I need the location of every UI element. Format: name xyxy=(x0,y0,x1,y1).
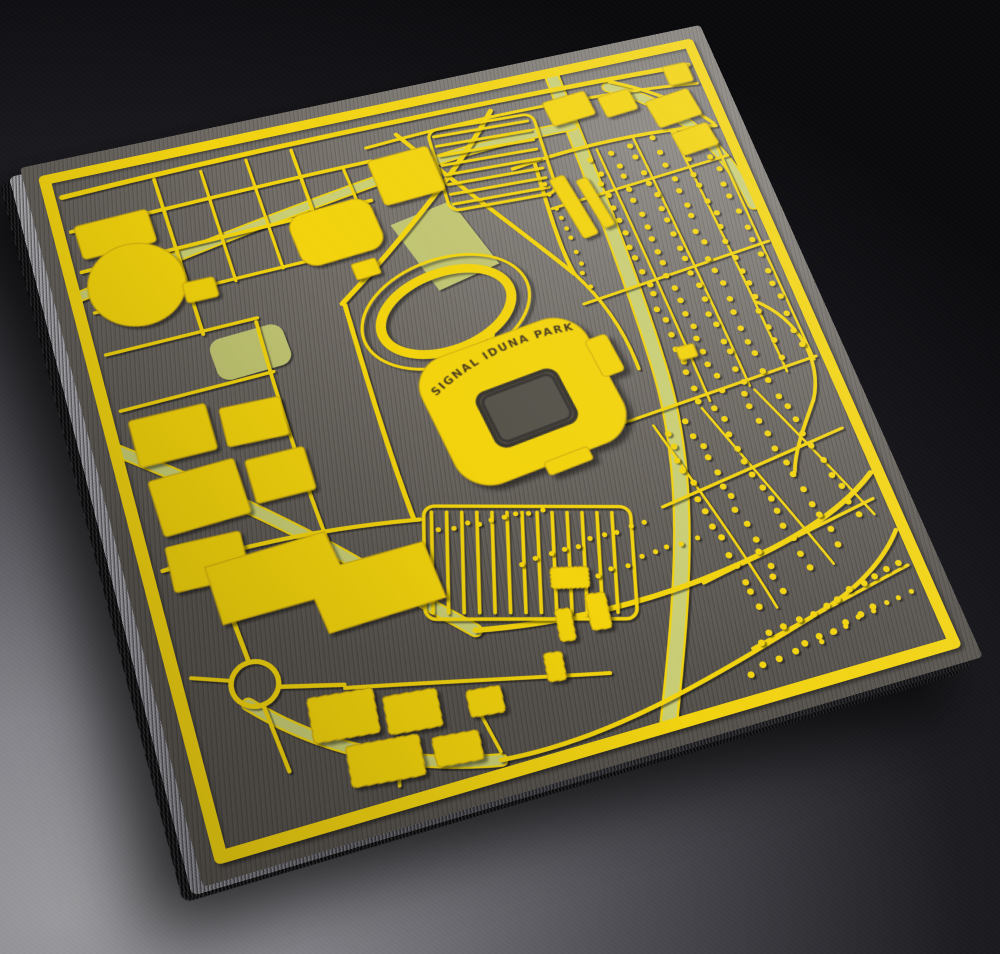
allotment-dot xyxy=(608,566,615,572)
allotment-dot xyxy=(710,405,719,412)
allotment-dot xyxy=(882,565,891,573)
building xyxy=(382,688,443,735)
allotment-dot xyxy=(719,483,728,491)
parking-stripe xyxy=(507,512,511,612)
allotment-dot xyxy=(641,519,648,525)
allotment-dot xyxy=(758,484,767,492)
allotment-dot xyxy=(692,228,700,235)
allotment-dot xyxy=(622,230,630,237)
allotment-dot xyxy=(451,525,458,531)
allotment-dot xyxy=(708,523,717,531)
allotment-dot xyxy=(694,535,701,541)
allotment-dot xyxy=(689,433,698,440)
allotment-dot xyxy=(716,166,724,172)
allotment-dot xyxy=(681,255,689,262)
allotment-dot xyxy=(687,212,695,219)
allotment-dot xyxy=(799,485,808,493)
allotment-dot xyxy=(568,235,574,240)
allotment-dot xyxy=(676,245,684,252)
allotment-dot xyxy=(575,544,582,550)
allotment-dot xyxy=(725,193,733,199)
parking-stripe xyxy=(537,512,541,612)
allotment-dot xyxy=(626,143,634,149)
allotment-dot xyxy=(689,171,697,177)
allotment-dot xyxy=(620,173,628,179)
allotment-dot xyxy=(792,416,801,423)
allotment-dot xyxy=(764,376,772,383)
allotment-dot xyxy=(578,261,584,266)
photo-scene: SIGNAL IDUNA PARK xyxy=(0,0,1000,954)
allotment-dot xyxy=(751,350,759,357)
allotment-dot xyxy=(616,163,624,169)
allotment-dot xyxy=(767,562,776,570)
allotment-dot xyxy=(731,506,740,514)
allotment-dot xyxy=(601,532,608,538)
allotment-dot xyxy=(573,249,579,254)
allotment-dot xyxy=(808,500,817,508)
exhibition-hall xyxy=(219,396,290,447)
allotment-dot xyxy=(758,661,767,669)
allotment-dot xyxy=(719,181,727,187)
allotment-dot xyxy=(662,316,670,323)
allotment-dot xyxy=(699,442,708,449)
allotment-dot xyxy=(755,603,764,611)
allotment-dot xyxy=(587,535,594,541)
allotment-dot xyxy=(700,239,708,246)
allotment-dot xyxy=(704,311,712,318)
road-segment xyxy=(365,73,697,154)
allotment-dot xyxy=(631,154,639,160)
allotment-dot xyxy=(737,325,745,332)
road-segment xyxy=(191,668,232,691)
building xyxy=(550,566,590,588)
allotment-dot xyxy=(628,523,635,529)
allotment-dot xyxy=(731,366,739,373)
allotment-dot xyxy=(701,507,710,515)
allotment-dot xyxy=(649,290,657,297)
allotment-dot xyxy=(855,510,864,518)
allotment-dot xyxy=(686,270,694,277)
allotment-dot xyxy=(512,511,519,517)
allotment-dot xyxy=(654,248,662,255)
allotment-dot xyxy=(631,254,639,261)
allotment-dot xyxy=(895,595,902,601)
allotment-dot xyxy=(720,415,729,422)
allotment-dot xyxy=(464,520,471,526)
allotment-dot xyxy=(815,632,824,640)
allotment-dot xyxy=(727,492,736,500)
allotment-dot xyxy=(740,458,749,465)
allotment-dot xyxy=(764,267,772,274)
allotment-dot xyxy=(625,563,632,569)
allotment-dot xyxy=(692,335,700,342)
allotment-dot xyxy=(764,629,773,637)
building xyxy=(675,343,698,360)
allotment-dot xyxy=(639,553,646,559)
allotment-dot xyxy=(757,251,765,258)
allotment-dot xyxy=(894,559,903,567)
parking-stripe xyxy=(612,513,618,613)
allotment-dot xyxy=(656,149,664,155)
allotment-dot xyxy=(755,417,764,424)
allotment-dot xyxy=(735,208,743,215)
building xyxy=(307,688,381,744)
allotment-dot xyxy=(563,226,569,231)
allotment-dot xyxy=(763,430,772,437)
allotment-dot xyxy=(741,578,750,586)
allotment-dot xyxy=(435,527,442,533)
allotment-dot xyxy=(648,135,656,141)
allotment-dot xyxy=(525,510,532,516)
building xyxy=(345,734,426,788)
parking-stripe xyxy=(448,168,543,185)
exhibition-hall xyxy=(245,446,317,504)
allotment-dot xyxy=(663,217,671,224)
allotment-dot xyxy=(663,544,670,550)
building xyxy=(585,592,612,631)
allotment-dot xyxy=(683,202,691,208)
allotment-dot xyxy=(644,224,652,231)
building xyxy=(542,91,596,127)
allotment-dot xyxy=(796,550,805,558)
allotment-dot xyxy=(719,280,727,287)
allotment-dot xyxy=(675,188,683,194)
allotment-dot xyxy=(703,361,711,368)
road-segment xyxy=(738,565,923,649)
parking-stripe xyxy=(447,512,449,613)
allotment-dot xyxy=(783,402,792,409)
allotment-dot xyxy=(724,551,733,559)
parking-stripe xyxy=(567,512,572,612)
allotment-dot xyxy=(693,495,702,503)
green-lot xyxy=(387,195,504,296)
allotment-dot xyxy=(870,572,879,580)
allotment-dot xyxy=(747,671,756,679)
allotment-dot xyxy=(629,197,637,203)
allotment-dot xyxy=(744,224,752,231)
allotment-dot xyxy=(775,655,784,663)
allotment-dot xyxy=(767,495,776,503)
allotment-dot xyxy=(834,541,843,549)
allotment-dot xyxy=(648,236,656,243)
allotment-dot xyxy=(712,321,720,328)
parking-stripe xyxy=(552,512,557,612)
allotment-dot xyxy=(681,310,689,317)
allotment-dot xyxy=(791,647,800,655)
road-segment xyxy=(201,171,236,281)
allotment-dot xyxy=(652,549,659,555)
allotment-dot xyxy=(782,459,791,466)
parking-stripe xyxy=(492,512,495,612)
allotment-dot xyxy=(561,546,568,552)
parking-stripe xyxy=(477,512,480,612)
allotment-dot xyxy=(699,348,707,355)
allotment-dot xyxy=(744,338,752,345)
allotment-dot xyxy=(713,469,722,477)
allotment-dot xyxy=(579,270,585,275)
allotment-dot xyxy=(711,267,719,274)
allotment-dot xyxy=(638,268,646,275)
allotment-dot xyxy=(704,454,713,461)
exhibition-hall xyxy=(128,403,218,468)
allotment-dot xyxy=(689,323,697,330)
allotment-dot xyxy=(743,520,752,528)
allotment-dot xyxy=(658,205,666,212)
allotment-dot xyxy=(748,236,756,243)
allotment-dot xyxy=(661,162,669,168)
allotment-dot xyxy=(800,639,809,647)
allotment-dot xyxy=(773,507,782,515)
building xyxy=(351,258,381,280)
allotment-dot xyxy=(768,573,777,581)
allotment-dot xyxy=(671,285,679,292)
allotment-dot xyxy=(681,418,690,425)
allotment-dot xyxy=(638,211,646,218)
allotment-dot xyxy=(720,338,728,345)
allotment-dot xyxy=(653,306,661,313)
allotment-dot xyxy=(740,390,748,397)
building xyxy=(466,685,506,718)
parking-stripe xyxy=(451,178,546,195)
allotment-dot xyxy=(640,170,648,176)
allotment-dot xyxy=(659,259,667,266)
allotment-dot xyxy=(676,297,684,304)
parking-stripe xyxy=(462,512,464,612)
allotment-dot xyxy=(768,280,776,287)
allotment-dot xyxy=(669,231,677,238)
allotment-dot xyxy=(779,587,788,595)
allotment-dot xyxy=(607,150,615,156)
allotment-dot xyxy=(771,445,780,452)
allotment-dot xyxy=(908,588,915,594)
allotment-dot xyxy=(682,369,690,376)
green-lot xyxy=(207,321,295,382)
allotment-dot xyxy=(826,525,835,533)
allotment-dot xyxy=(752,536,761,544)
allotment-dot xyxy=(558,215,564,220)
allotment-dot xyxy=(726,295,734,302)
allotment-dot xyxy=(667,331,675,338)
allotment-dot xyxy=(779,522,788,530)
allotment-dot xyxy=(671,176,679,182)
allotment-dot xyxy=(713,372,721,379)
allotment-dot xyxy=(729,309,737,316)
allotment-dot xyxy=(690,385,698,392)
allotment-dot xyxy=(745,403,754,410)
road-segment xyxy=(577,241,776,304)
allotment-dot xyxy=(806,563,815,571)
allotment-dot xyxy=(746,588,755,596)
allotment-dot xyxy=(775,393,784,400)
allotment-dot xyxy=(717,533,726,541)
allotment-dot xyxy=(883,599,890,605)
allotment-dot xyxy=(783,310,791,317)
